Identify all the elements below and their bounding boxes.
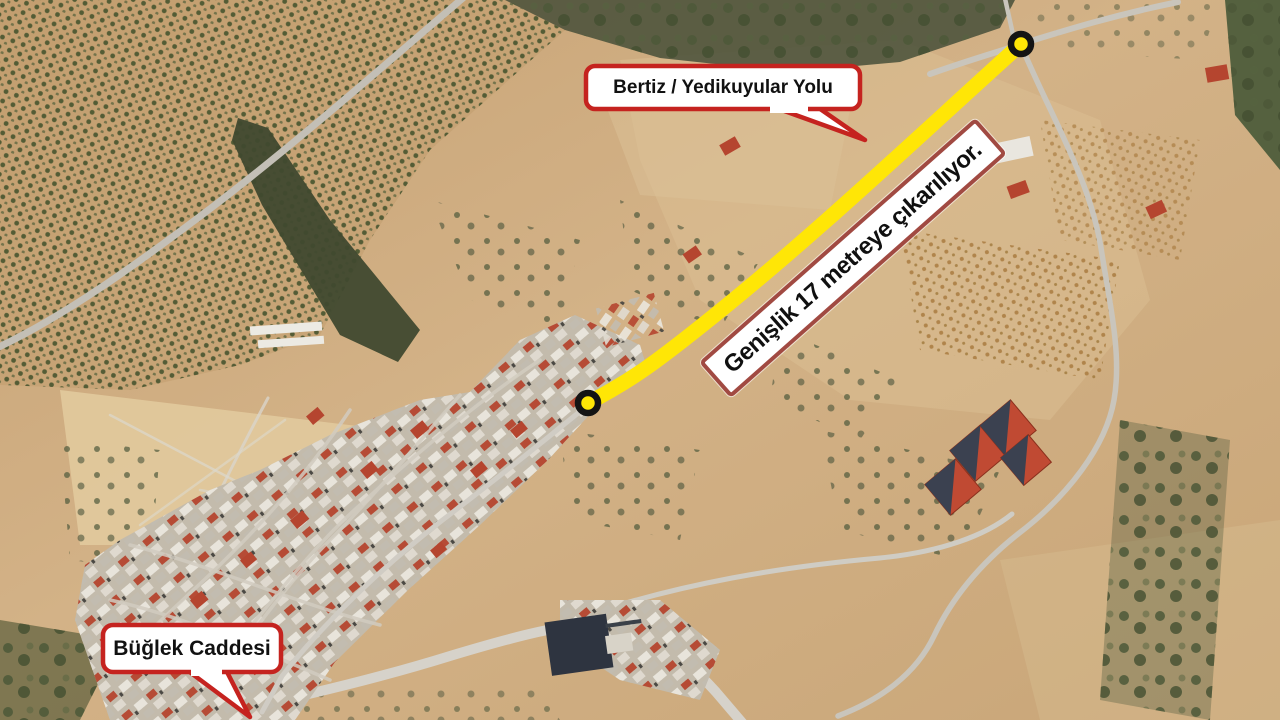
callout-pointer <box>187 670 250 717</box>
callout-bertiz-label: Bertiz / Yedikuyular Yolu <box>586 66 860 109</box>
callout-buglek-label: Büğlek Caddesi <box>103 625 281 672</box>
callout-bertiz-yedikuyular: Bertiz / Yedikuyular Yolu <box>570 60 890 152</box>
route-endpoint-marker-north <box>1011 34 1031 54</box>
callout-buglek-caddesi: Büğlek Caddesi <box>90 618 350 720</box>
route-endpoint-marker-south <box>578 393 598 413</box>
annotated-satellite-map: Bertiz / Yedikuyular Yolu Genişlik 17 me… <box>0 0 1280 720</box>
